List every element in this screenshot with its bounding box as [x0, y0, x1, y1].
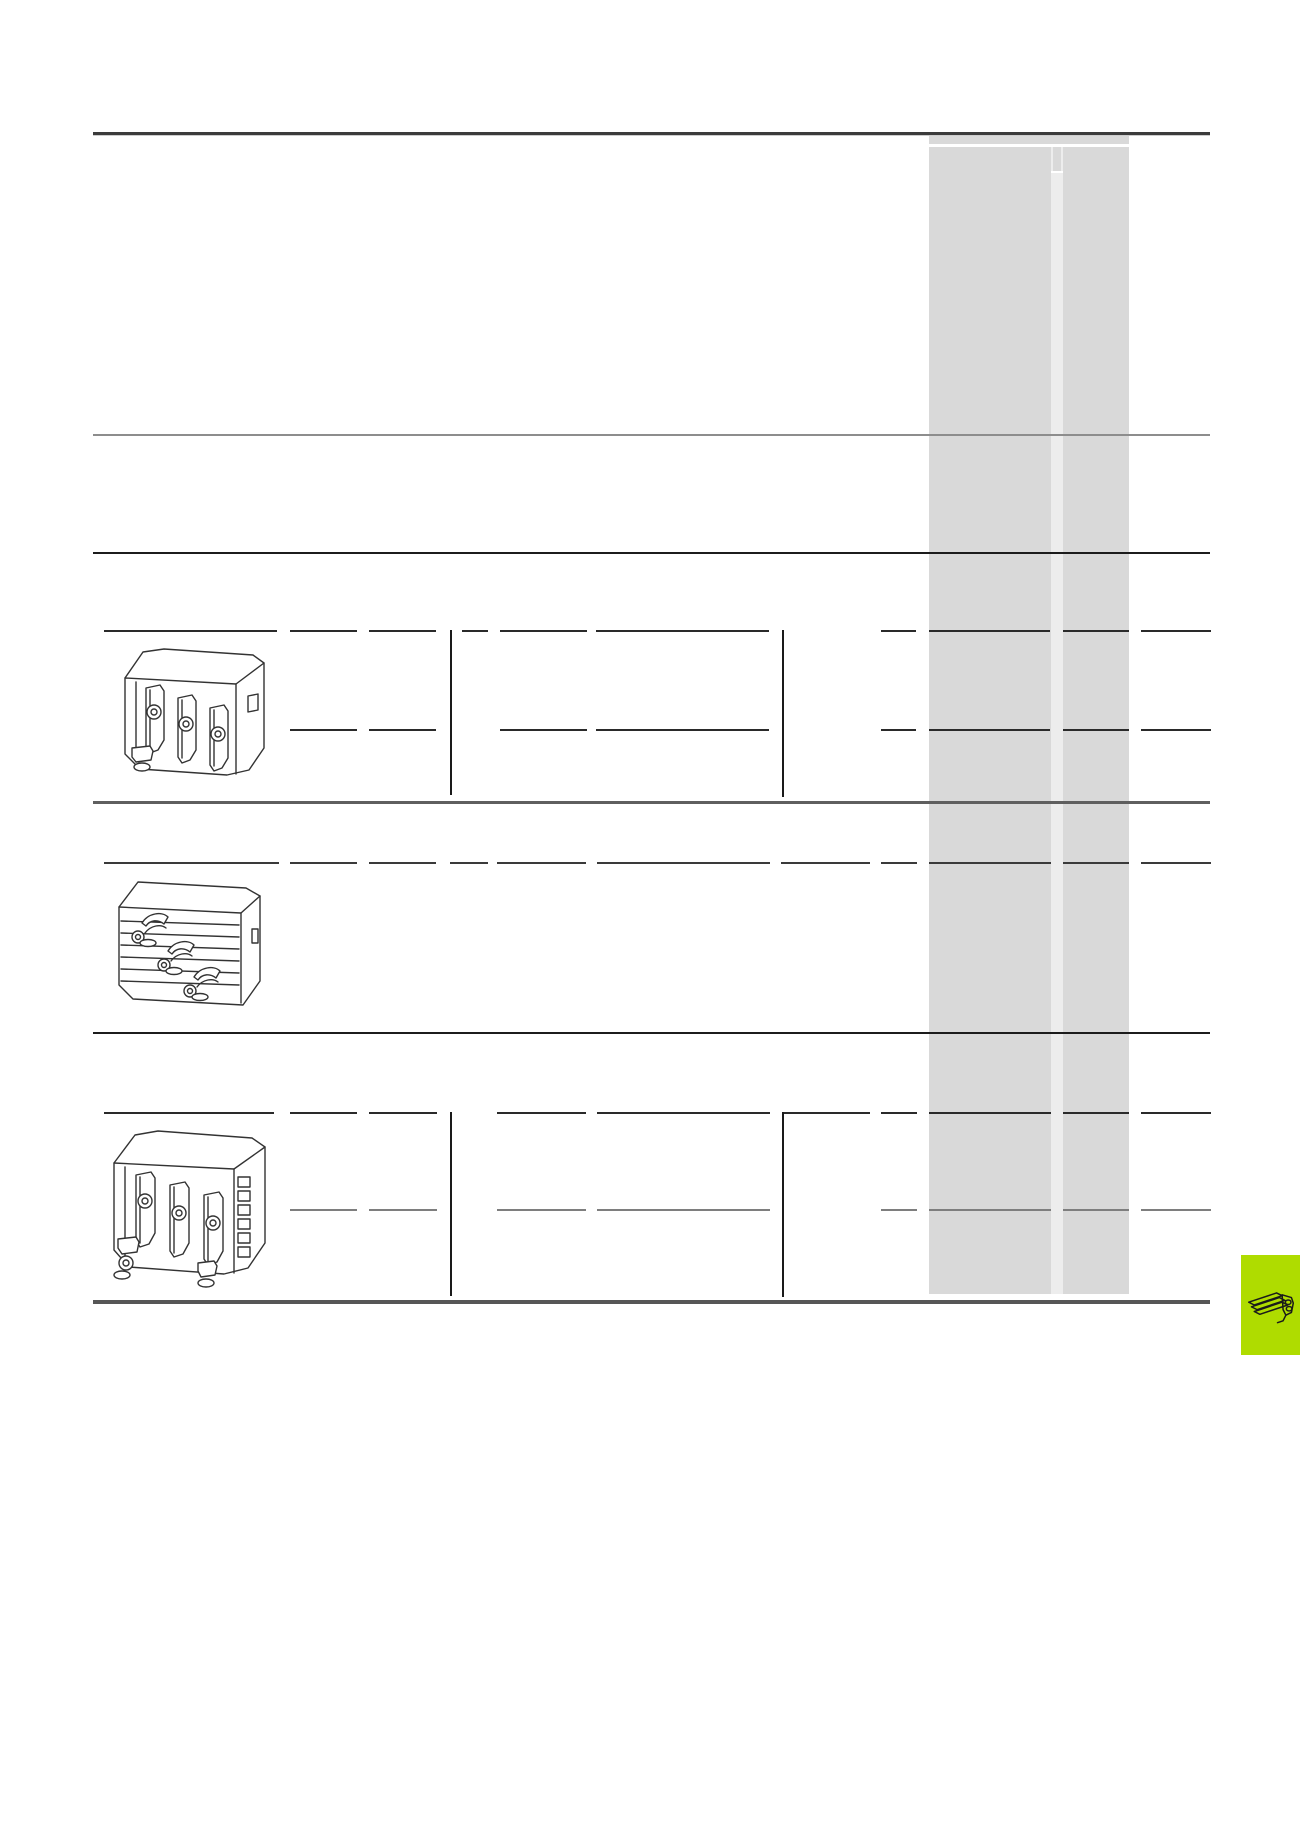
entry-dash-line — [104, 1112, 274, 1114]
entry-dash-line — [497, 1112, 586, 1114]
entry-dash-line — [497, 1209, 586, 1211]
entry-dash-line — [290, 1209, 357, 1211]
entry-dash-line — [929, 1112, 1051, 1114]
entry-dash-line — [597, 1209, 770, 1211]
entry-dash-line — [1063, 862, 1129, 864]
entry-dash-line — [1141, 729, 1211, 731]
column-divider — [450, 630, 452, 795]
price-column-narrow-strip — [1051, 147, 1063, 1294]
entry-dash-line — [1141, 862, 1211, 864]
entry-dash-line — [881, 630, 916, 632]
entry-dash-line — [104, 862, 279, 864]
entry-dash-line — [929, 729, 1050, 731]
catalog-page — [0, 0, 1300, 1841]
entry-dash-line — [1063, 729, 1129, 731]
entry-dash-line — [369, 1112, 437, 1114]
busbar-terminal-drawing-row2 — [108, 867, 274, 1027]
busbar-adapter-drawing-row1 — [112, 636, 278, 796]
entry-dash-line — [597, 1112, 770, 1114]
entry-dash-line — [500, 729, 587, 731]
entry-dash-line — [783, 1112, 870, 1114]
entry-dash-line — [450, 862, 488, 864]
entry-dash-line — [1141, 630, 1211, 632]
entry-dash-line — [1063, 1112, 1129, 1114]
entry-dash-line — [290, 630, 357, 632]
entry-dash-line — [597, 862, 770, 864]
entry-dash-line — [1141, 1112, 1211, 1114]
horizontal-rule — [93, 434, 1210, 436]
horizontal-rule — [93, 135, 1210, 136]
entry-dash-line — [1141, 1209, 1211, 1211]
entry-dash-line — [1063, 630, 1129, 632]
horizontal-rule — [93, 801, 1210, 804]
entry-dash-line — [596, 729, 769, 731]
horizontal-rule — [93, 1300, 1210, 1304]
entry-dash-line — [290, 729, 357, 731]
entry-dash-line — [881, 862, 917, 864]
column-divider — [450, 1112, 452, 1296]
entry-dash-line — [462, 630, 488, 632]
entry-dash-line — [290, 1112, 357, 1114]
price-column-strip-cell-divider — [1051, 171, 1063, 173]
price-column-header-divider — [929, 144, 1129, 147]
entry-dash-line — [929, 862, 1051, 864]
entry-dash-line — [881, 1209, 917, 1211]
entry-dash-line — [104, 630, 277, 632]
column-divider — [782, 1112, 784, 1297]
entry-dash-line — [781, 862, 870, 864]
entry-dash-line — [929, 630, 1050, 632]
price-column-highlight — [929, 135, 1129, 1294]
horizontal-rule — [93, 552, 1210, 554]
entry-dash-line — [369, 862, 436, 864]
column-divider — [782, 630, 784, 797]
entry-dash-line — [290, 862, 357, 864]
horizontal-rule — [93, 1032, 1210, 1034]
busbar-adapter-drawing-row3 — [102, 1117, 282, 1295]
entry-dash-line — [1063, 1209, 1129, 1211]
entry-dash-line — [369, 1209, 437, 1211]
entry-dash-line — [369, 729, 436, 731]
chapter-tab-adapter-icon — [1245, 1283, 1297, 1327]
entry-dash-line — [881, 1112, 917, 1114]
price-column-strip-cell — [1053, 147, 1061, 171]
entry-dash-line — [369, 630, 436, 632]
entry-dash-line — [596, 630, 769, 632]
entry-dash-line — [500, 630, 587, 632]
entry-dash-line — [881, 729, 916, 731]
entry-dash-line — [929, 1209, 1051, 1211]
chapter-tab[interactable] — [1241, 1255, 1300, 1355]
entry-dash-line — [497, 862, 586, 864]
